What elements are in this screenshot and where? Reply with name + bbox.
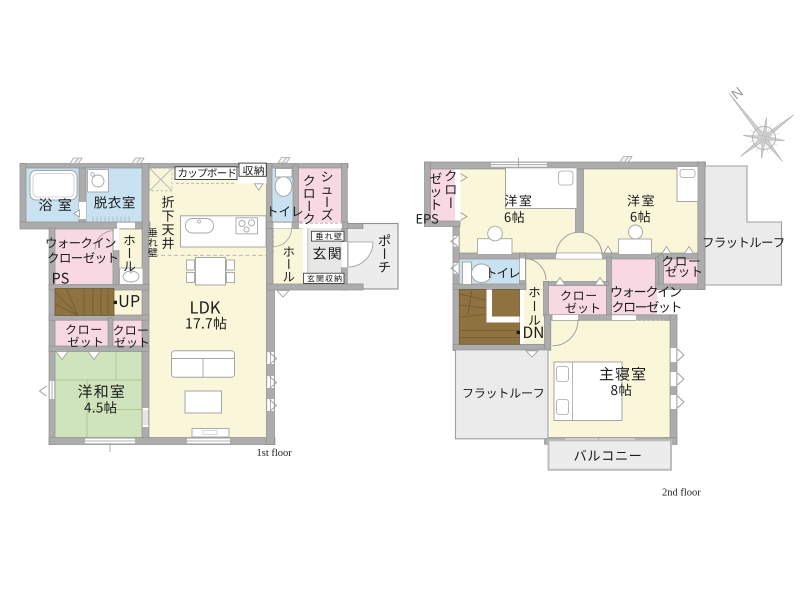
svg-text:1st floor: 1st floor [257, 448, 293, 459]
svg-text:2nd floor: 2nd floor [662, 488, 701, 499]
svg-text:N: N [728, 83, 746, 102]
